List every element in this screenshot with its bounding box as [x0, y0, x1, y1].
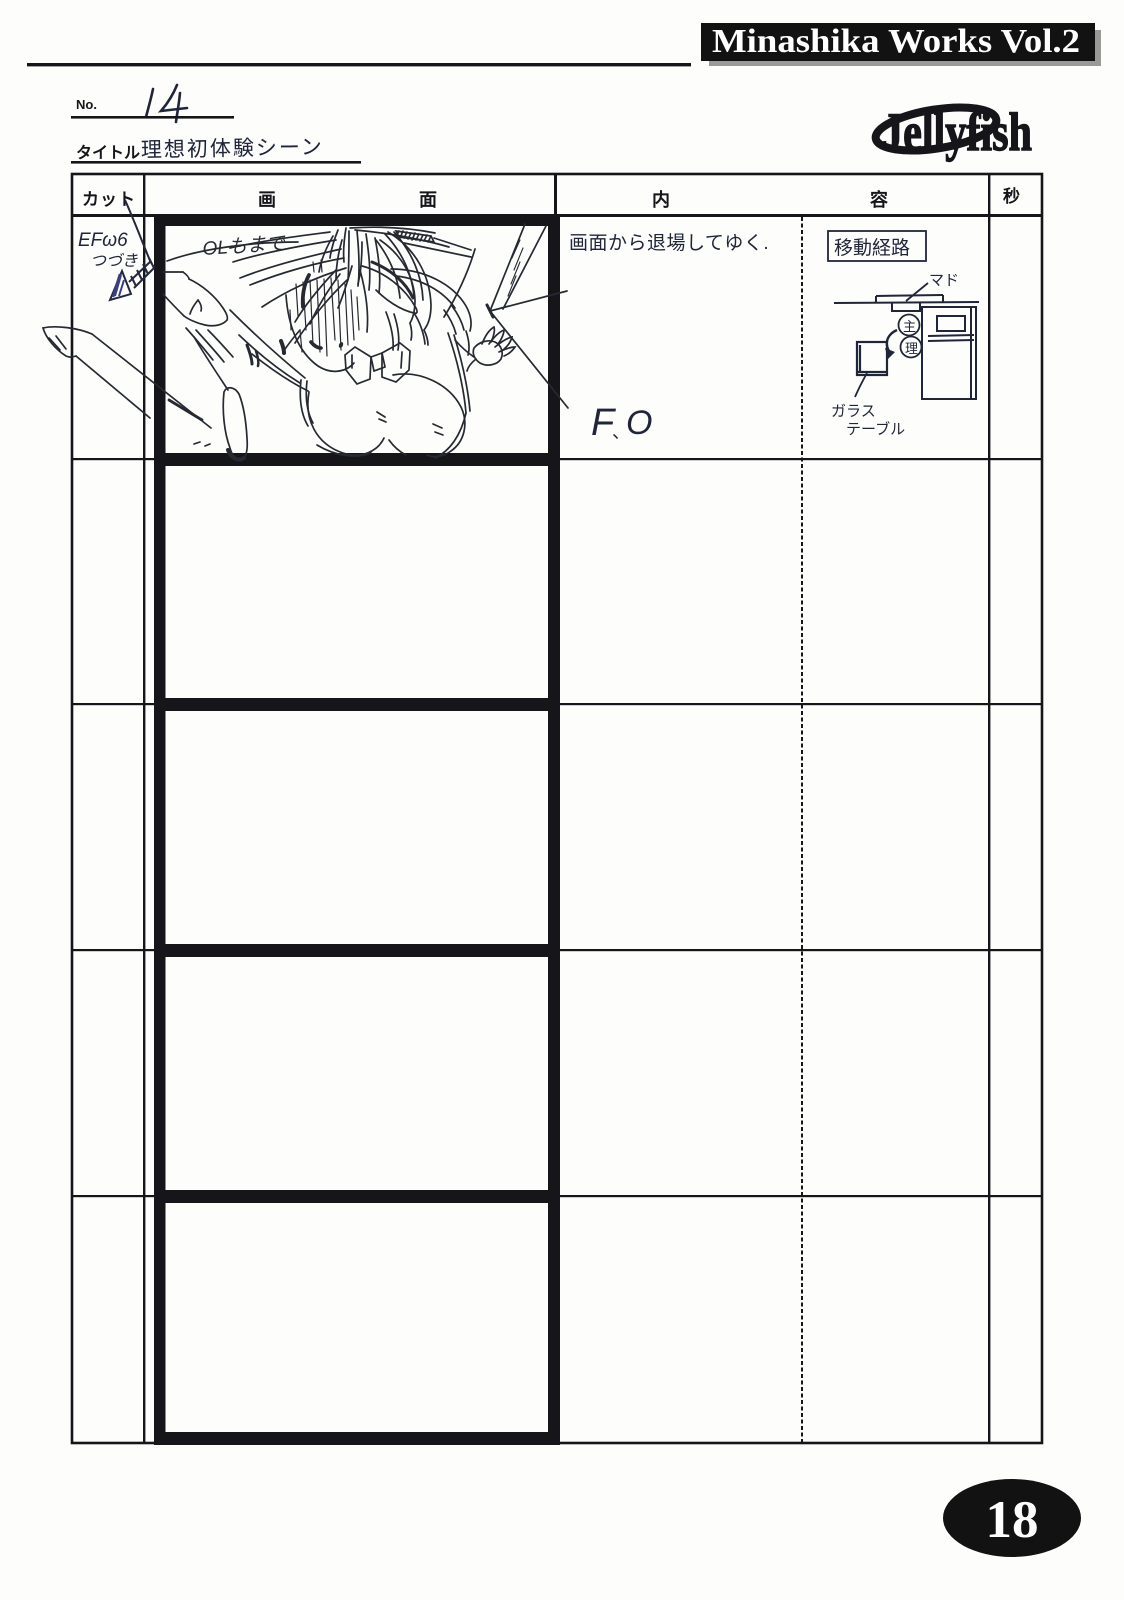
svg-text:タイトル: タイトル	[76, 144, 140, 162]
svg-text:EFω6: EFω6	[78, 230, 128, 251]
svg-text:Jellyfish: Jellyfish	[882, 102, 1032, 162]
svg-text:容: 容	[870, 189, 888, 210]
svg-text:面: 面	[419, 190, 437, 210]
svg-text:18: 18	[986, 1491, 1039, 1549]
svg-text:つづき: つづき	[90, 252, 138, 270]
svg-text:O: O	[626, 404, 652, 442]
svg-text:Minashika Works Vol.2: Minashika Works Vol.2	[712, 23, 1080, 60]
svg-text:画面から退場してゆく.: 画面から退場してゆく.	[569, 232, 769, 254]
svg-text:秒: 秒	[1003, 186, 1020, 206]
svg-text:主: 主	[903, 319, 916, 334]
svg-text:内: 内	[652, 189, 670, 210]
svg-text:理想初体験シーン: 理想初体験シーン	[141, 136, 324, 162]
svg-text:画: 画	[258, 190, 276, 210]
svg-text:ガラス: ガラス	[831, 403, 876, 420]
svg-text:マド: マド	[929, 272, 959, 289]
svg-text:No.: No.	[76, 97, 97, 112]
svg-text:移動経路: 移動経路	[834, 237, 910, 259]
svg-text:理: 理	[905, 341, 918, 356]
svg-text:テーブル: テーブル	[846, 420, 905, 438]
